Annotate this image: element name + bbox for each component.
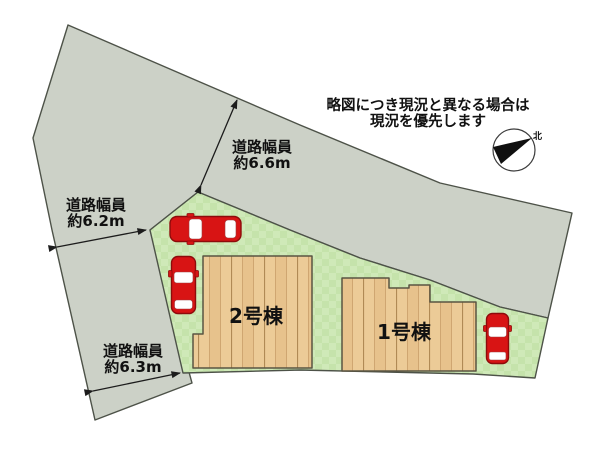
- car-windshield: [189, 219, 202, 239]
- road-width-label-6-3m: 道路幅員 約6.3m: [103, 342, 163, 376]
- road-width-label-line2: 約6.3m: [104, 358, 161, 376]
- compass-north-label: 北: [533, 130, 542, 142]
- car-mirror: [484, 326, 487, 332]
- car-icon-1: [170, 214, 241, 245]
- disclaimer-line2: 現況を優先します: [370, 112, 486, 130]
- building-2-label: 2号棟: [229, 304, 284, 328]
- car-icon-3: [484, 314, 512, 364]
- car-mirror: [187, 214, 194, 218]
- building-1-label: 1号棟: [377, 320, 432, 344]
- site-plan-page: 道路幅員 約6.6m 道路幅員 約6.2m 道路幅員 約6.3m 2号棟 1号棟…: [0, 0, 600, 450]
- car-rear-window: [489, 352, 506, 360]
- road-width-label-line2: 約6.2m: [67, 212, 124, 230]
- car-rear-window: [225, 220, 236, 238]
- road-width-label-line2: 約6.6m: [233, 154, 290, 172]
- car-icon-2: [169, 257, 199, 314]
- car-mirror: [169, 271, 173, 278]
- car-windshield: [174, 272, 193, 283]
- site-plan-diagram: 道路幅員 約6.6m 道路幅員 約6.2m 道路幅員 約6.3m 2号棟 1号棟…: [0, 0, 600, 450]
- car-mirror: [509, 326, 512, 332]
- car-mirror: [187, 241, 194, 245]
- car-rear-window: [175, 300, 193, 309]
- road-width-label-6-6m: 道路幅員 約6.6m: [232, 138, 292, 172]
- road-width-label-6-2m: 道路幅員 約6.2m: [66, 196, 126, 230]
- disclaimer-line1: 略図につき現況と異なる場合は: [327, 96, 530, 114]
- car-mirror: [195, 271, 199, 278]
- car-windshield: [489, 327, 507, 337]
